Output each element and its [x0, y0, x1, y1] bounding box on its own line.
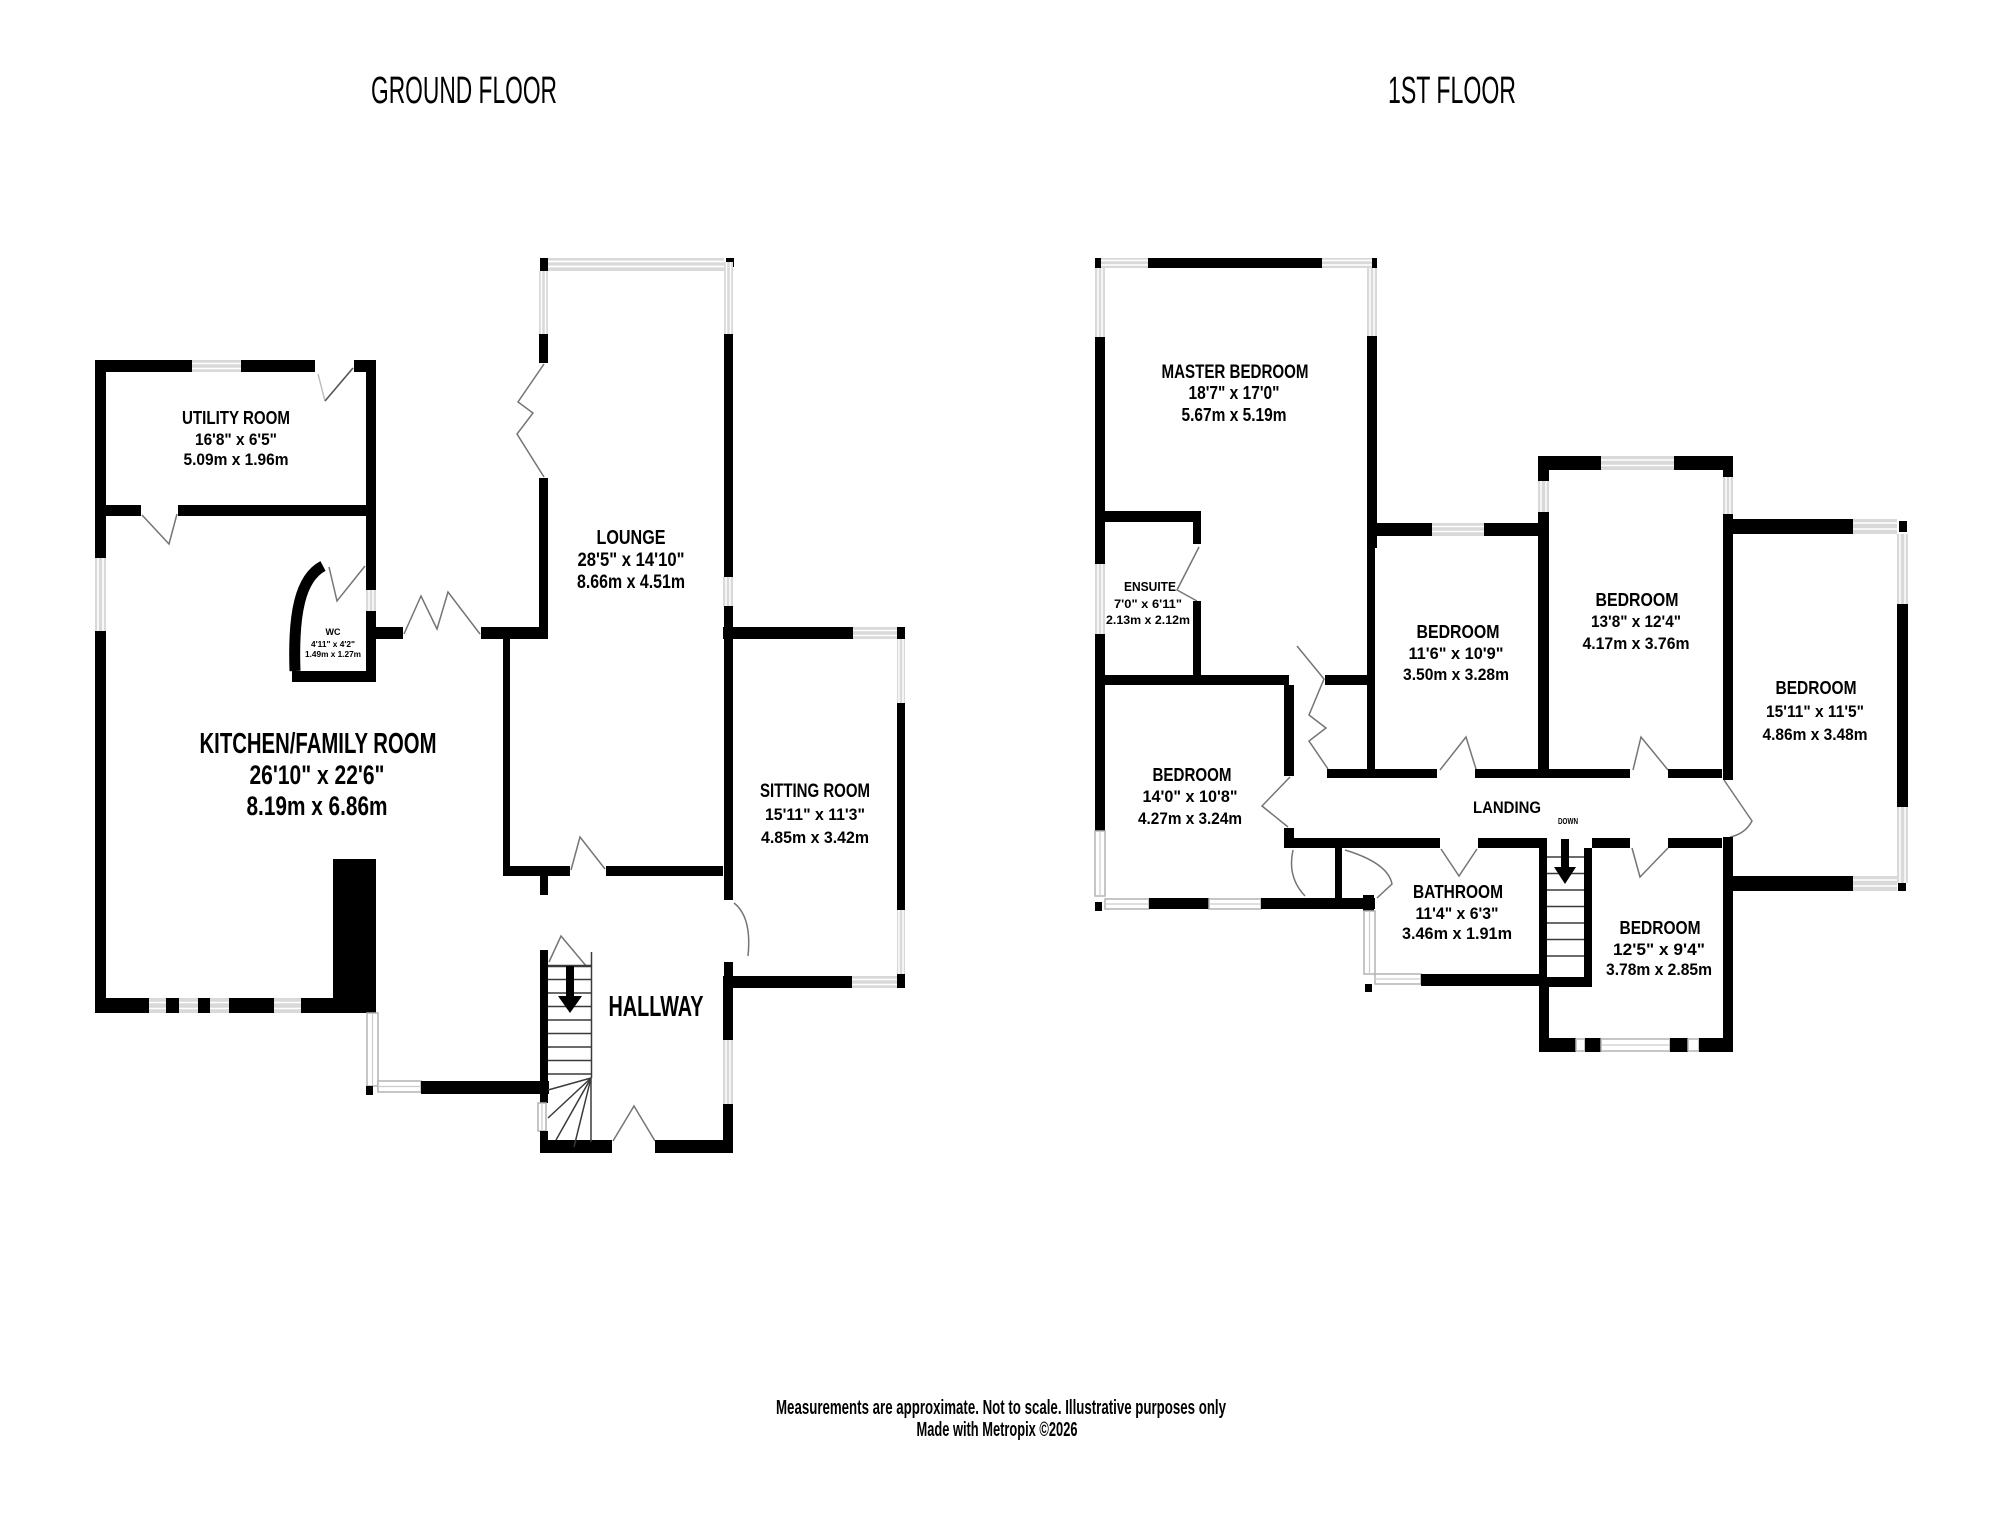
svg-text:7'0" x 6'11": 7'0" x 6'11"	[1114, 597, 1182, 611]
svg-text:ENSUITE: ENSUITE	[1124, 579, 1176, 594]
svg-text:8.66m x 4.51m: 8.66m x 4.51m	[577, 572, 685, 593]
svg-text:14'0" x 10'8": 14'0" x 10'8"	[1143, 787, 1238, 806]
svg-text:LANDING: LANDING	[1473, 798, 1541, 817]
svg-text:28'5" x 14'10": 28'5" x 14'10"	[578, 550, 685, 571]
svg-text:BATHROOM: BATHROOM	[1413, 882, 1503, 902]
svg-text:4.86m x 3.48m: 4.86m x 3.48m	[1763, 725, 1868, 744]
svg-text:16'8" x 6'5": 16'8" x 6'5"	[195, 430, 277, 449]
svg-text:8.19m x 6.86m: 8.19m x 6.86m	[247, 791, 388, 821]
svg-text:13'8" x 12'4": 13'8" x 12'4"	[1591, 612, 1681, 631]
svg-text:18'7" x 17'0": 18'7" x 17'0"	[1189, 383, 1280, 403]
svg-text:1.49m x 1.27m: 1.49m x 1.27m	[305, 650, 361, 659]
svg-text:11'6" x 10'9": 11'6" x 10'9"	[1409, 644, 1504, 663]
svg-text:2.13m x 2.12m: 2.13m x 2.12m	[1106, 613, 1190, 627]
svg-text:15'11" x 11'5": 15'11" x 11'5"	[1766, 702, 1864, 721]
svg-text:1ST FLOOR: 1ST FLOOR	[1388, 70, 1516, 112]
svg-text:Made with Metropix ©2026: Made with Metropix ©2026	[917, 1419, 1078, 1441]
svg-text:26'10" x 22'6": 26'10" x 22'6"	[250, 760, 385, 790]
svg-text:MASTER BEDROOM: MASTER BEDROOM	[1162, 361, 1309, 383]
svg-text:BEDROOM: BEDROOM	[1776, 678, 1857, 698]
svg-text:BEDROOM: BEDROOM	[1153, 765, 1232, 785]
svg-text:5.67m x 5.19m: 5.67m x 5.19m	[1182, 405, 1287, 425]
svg-text:4.27m x 3.24m: 4.27m x 3.24m	[1138, 809, 1242, 828]
svg-text:BEDROOM: BEDROOM	[1417, 622, 1500, 642]
svg-text:15'11" x 11'3": 15'11" x 11'3"	[765, 805, 865, 824]
svg-text:12'5" x 9'4": 12'5" x 9'4"	[1613, 940, 1705, 959]
svg-text:UTILITY ROOM: UTILITY ROOM	[182, 408, 290, 428]
svg-text:3.46m x 1.91m: 3.46m x 1.91m	[1402, 924, 1512, 943]
svg-text:LOUNGE: LOUNGE	[597, 527, 666, 549]
svg-text:4.17m x 3.76m: 4.17m x 3.76m	[1583, 634, 1690, 653]
svg-text:WC: WC	[326, 627, 341, 637]
svg-text:DOWN: DOWN	[1558, 817, 1578, 826]
svg-text:KITCHEN/FAMILY ROOM: KITCHEN/FAMILY ROOM	[200, 728, 437, 760]
svg-text:4'11" x 4'2": 4'11" x 4'2"	[311, 640, 355, 649]
svg-text:3.78m x 2.85m: 3.78m x 2.85m	[1606, 960, 1712, 979]
svg-text:11'4" x 6'3": 11'4" x 6'3"	[1416, 904, 1499, 923]
svg-text:SITTING ROOM: SITTING ROOM	[760, 781, 870, 802]
svg-text:Measurements are approximate.: Measurements are approximate. Not to sca…	[776, 1397, 1227, 1419]
svg-text:HALLWAY: HALLWAY	[609, 991, 704, 1023]
svg-text:4.85m x 3.42m: 4.85m x 3.42m	[761, 828, 869, 847]
svg-text:5.09m x 1.96m: 5.09m x 1.96m	[184, 450, 289, 469]
svg-text:3.50m x 3.28m: 3.50m x 3.28m	[1403, 665, 1509, 684]
svg-text:BEDROOM: BEDROOM	[1596, 590, 1679, 610]
svg-text:BEDROOM: BEDROOM	[1620, 918, 1701, 938]
svg-text:GROUND FLOOR: GROUND FLOOR	[371, 70, 557, 112]
